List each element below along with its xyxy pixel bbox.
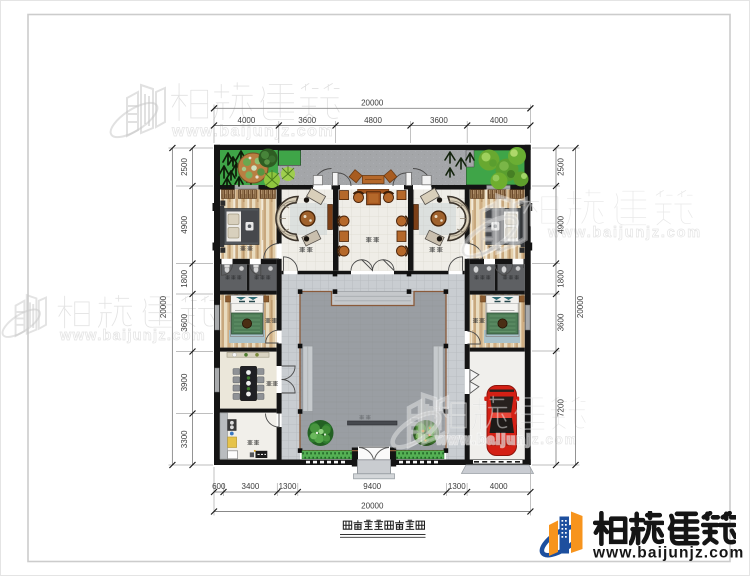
svg-text:2500: 2500	[557, 158, 566, 176]
svg-text:4000: 4000	[490, 116, 508, 125]
svg-text:3600: 3600	[180, 313, 189, 331]
svg-text:www.baijunjz.com: www.baijunjz.com	[547, 225, 702, 241]
svg-text:600: 600	[212, 482, 226, 491]
svg-text:4800: 4800	[364, 116, 382, 125]
svg-text:4900: 4900	[557, 215, 566, 233]
svg-text:1800: 1800	[180, 269, 189, 287]
svg-text:www.baijunjz.com: www.baijunjz.com	[435, 432, 578, 447]
svg-text:3900: 3900	[180, 373, 189, 391]
svg-text:3600: 3600	[298, 116, 316, 125]
svg-text:3600: 3600	[430, 116, 448, 125]
svg-text:www.baijunjz.com: www.baijunjz.com	[592, 545, 744, 562]
svg-text:20000: 20000	[576, 295, 585, 318]
svg-text:4000: 4000	[238, 116, 256, 125]
svg-text:2500: 2500	[180, 158, 189, 176]
svg-text:3600: 3600	[557, 313, 566, 331]
svg-text:9400: 9400	[363, 482, 381, 491]
svg-text:1300: 1300	[448, 482, 466, 491]
svg-text:3300: 3300	[180, 430, 189, 448]
svg-text:20000: 20000	[361, 99, 384, 108]
svg-text:4900: 4900	[180, 215, 189, 233]
svg-text:3400: 3400	[242, 482, 260, 491]
svg-text:1300: 1300	[279, 482, 297, 491]
svg-text:4000: 4000	[490, 482, 508, 491]
svg-text:20000: 20000	[361, 502, 384, 511]
svg-text:1800: 1800	[557, 269, 566, 287]
svg-text:7200: 7200	[557, 399, 566, 417]
svg-text:20000: 20000	[159, 295, 168, 318]
